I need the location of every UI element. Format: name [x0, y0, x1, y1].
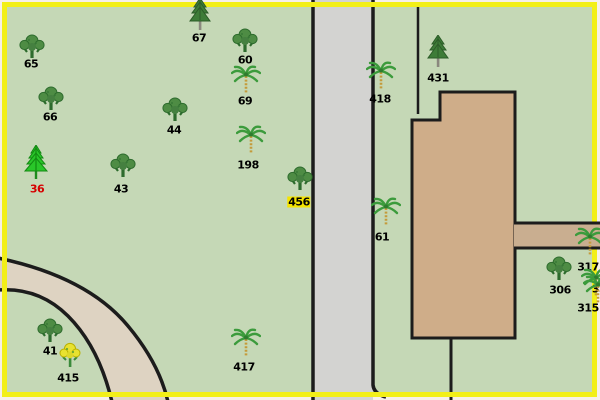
tree-label-36: 36: [29, 184, 45, 195]
tree-label-417: 417: [232, 362, 255, 373]
tree-label-69: 69: [237, 96, 253, 107]
palm-tree-icon[interactable]: [366, 61, 396, 95]
deciduous-tree-icon[interactable]: [108, 151, 138, 185]
deciduous-tree-icon[interactable]: [285, 164, 315, 198]
trees-layer: 65 66 67 60 69 44 198 43 36 456: [0, 0, 600, 400]
conifer-tree-icon[interactable]: [423, 35, 453, 69]
tree-label-431: 431: [426, 73, 449, 84]
tree-label-415: 415: [56, 373, 79, 384]
palm-tree-icon[interactable]: [236, 125, 266, 159]
tree-label-43: 43: [113, 184, 129, 195]
tree-label-44: 44: [166, 125, 182, 136]
palm-tree-icon[interactable]: [231, 328, 261, 362]
map-canvas[interactable]: 65 66 67 60 69 44 198 43 36 456: [0, 0, 600, 400]
palm-tree-icon[interactable]: [371, 197, 401, 231]
tree-label-66: 66: [42, 112, 58, 123]
flowering-tree-icon[interactable]: [55, 339, 85, 373]
tree-label-60: 60: [237, 55, 253, 66]
tree-label-198: 198: [236, 160, 259, 171]
tree-label-418: 418: [368, 94, 391, 105]
palm-tree-icon[interactable]: [575, 227, 600, 261]
tree-label-456: 456: [287, 197, 310, 208]
tree-label-306: 306: [548, 285, 571, 296]
tree-label-61: 61: [374, 232, 390, 243]
tree-label-67: 67: [191, 33, 207, 44]
conifer-tree-icon[interactable]: [185, 0, 215, 32]
tree-label-315: 315: [576, 303, 599, 314]
tree-label-65: 65: [23, 59, 39, 70]
spruce-tree-icon[interactable]: [21, 145, 51, 179]
